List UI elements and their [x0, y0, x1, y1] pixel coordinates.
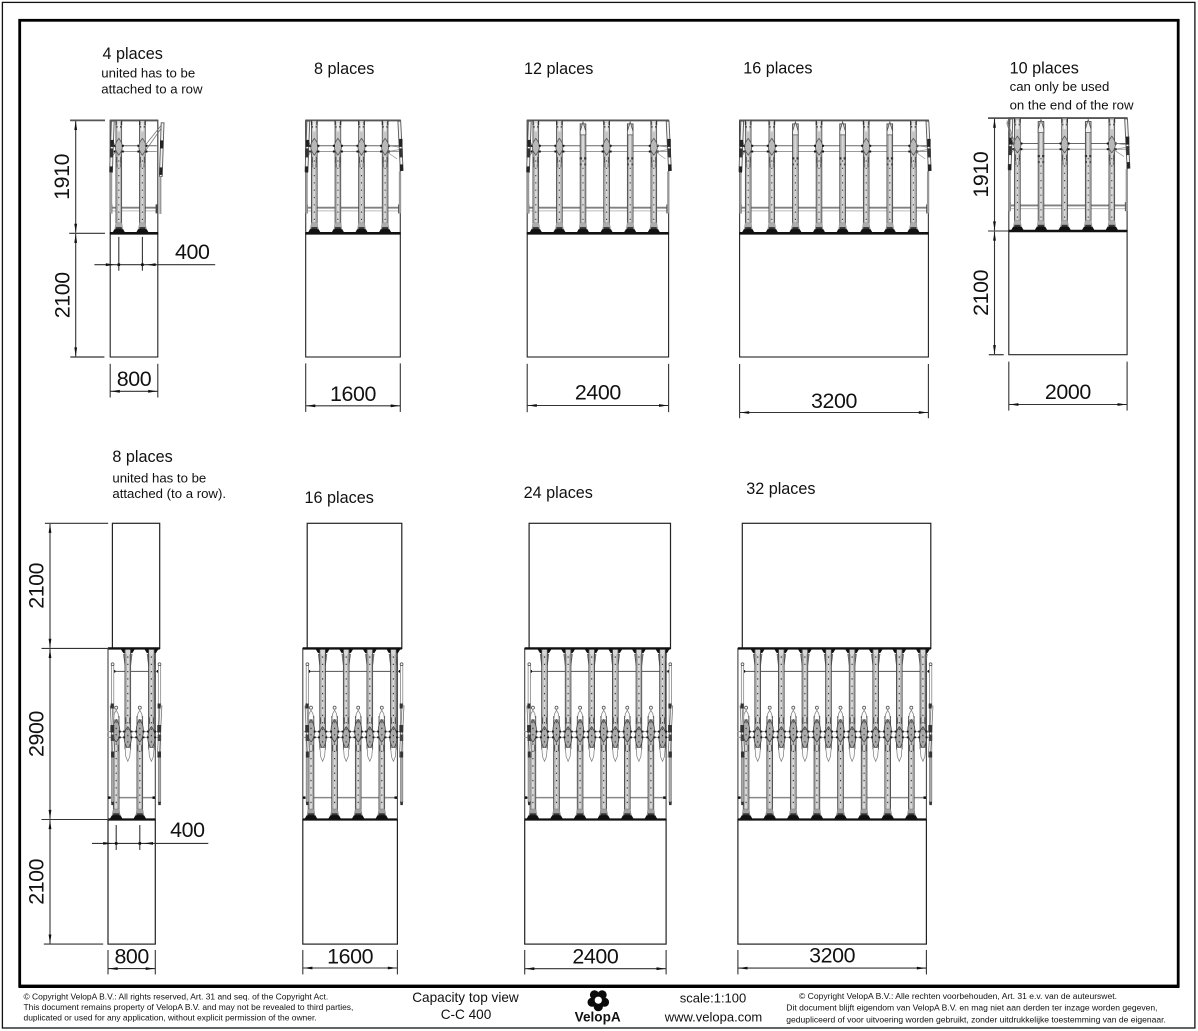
svg-text:www.velopa.com: www.velopa.com [664, 1010, 763, 1025]
svg-text:32 places: 32 places [746, 480, 815, 498]
svg-text:attached (to a row).: attached (to a row). [112, 486, 226, 501]
svg-text:united has to be: united has to be [112, 470, 206, 485]
svg-text:8 places: 8 places [112, 448, 172, 466]
svg-text:© Copyright VelopA B.V.: All: © Copyright VelopA B.V.: All rights rese… [24, 992, 329, 1002]
svg-text:400: 400 [175, 240, 210, 264]
svg-text:gedupliceerd of voor uitvoerin: gedupliceerd of voor uitvoering worden g… [786, 1015, 1166, 1025]
svg-text:800: 800 [117, 367, 152, 391]
svg-text:Dit document blijft eigendom v: Dit document blijft eigendom van VelopA … [786, 1003, 1157, 1013]
svg-text:2900: 2900 [25, 711, 49, 757]
svg-text:Capacity top view: Capacity top view [412, 990, 519, 1005]
svg-text:12 places: 12 places [524, 60, 593, 78]
svg-text:2000: 2000 [1045, 380, 1091, 404]
svg-text:16 places: 16 places [743, 60, 812, 78]
svg-text:3200: 3200 [809, 944, 855, 968]
svg-text:on the end of the row: on the end of the row [1010, 98, 1134, 113]
svg-text:2400: 2400 [575, 381, 621, 405]
svg-text:duplicated or used for any app: duplicated or used for any application, … [24, 1013, 317, 1023]
svg-text:This document remains property: This document remains property of VelopA… [24, 1002, 354, 1012]
svg-text:2100: 2100 [969, 269, 993, 315]
svg-text:scale:1:100: scale:1:100 [680, 990, 747, 1005]
svg-text:10 places: 10 places [1010, 60, 1079, 78]
svg-text:can only be used: can only be used [1010, 79, 1110, 94]
svg-text:1910: 1910 [50, 153, 74, 199]
svg-text:attached to a row: attached to a row [101, 81, 203, 96]
svg-text:1600: 1600 [327, 944, 373, 968]
svg-text:2100: 2100 [50, 272, 74, 318]
svg-text:© Copyright VelopA B.V.: Al: © Copyright VelopA B.V.: Alle rechten vo… [799, 991, 1117, 1001]
svg-text:2100: 2100 [25, 858, 49, 904]
svg-text:VelopA: VelopA [575, 1009, 621, 1024]
svg-text:2100: 2100 [25, 562, 49, 608]
svg-text:1600: 1600 [330, 382, 376, 406]
svg-text:3200: 3200 [811, 389, 857, 413]
svg-text:8 places: 8 places [314, 60, 374, 78]
svg-text:C-C 400: C-C 400 [441, 1007, 492, 1022]
svg-text:united has to be: united has to be [101, 66, 195, 81]
svg-text:24 places: 24 places [524, 484, 593, 502]
svg-text:2400: 2400 [572, 944, 618, 968]
svg-text:16 places: 16 places [305, 489, 374, 507]
svg-text:1910: 1910 [969, 151, 993, 197]
svg-text:4 places: 4 places [103, 45, 163, 63]
svg-text:800: 800 [114, 945, 149, 969]
svg-text:400: 400 [170, 818, 205, 842]
